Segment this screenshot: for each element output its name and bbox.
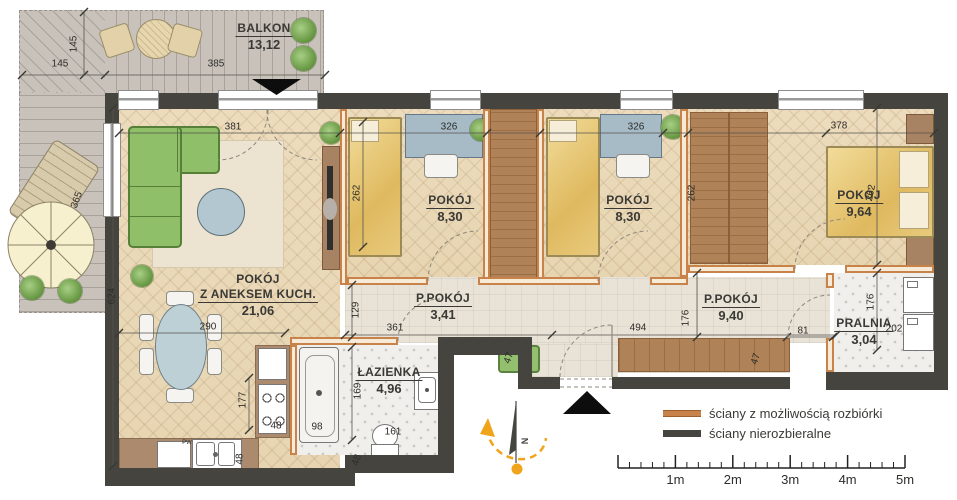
scale-label: 1m (666, 472, 684, 487)
wall-structural (518, 355, 532, 389)
umbrella-icon (4, 198, 98, 292)
sink-basin (218, 442, 235, 466)
sofa-cushion-line (130, 216, 180, 217)
floor-entry (532, 343, 618, 377)
legend-swatch-dark (663, 430, 701, 437)
scale-label: 2m (724, 472, 742, 487)
sofa-cushion-line (130, 186, 180, 187)
plant-icon (291, 46, 316, 71)
wall-demolishable (478, 277, 600, 285)
legend-item-demolishable: ściany z możliwością rozbiórki (663, 406, 882, 421)
legend-swatch-orange (663, 410, 701, 417)
wall-structural (612, 377, 790, 389)
wall-demolishable (680, 109, 688, 277)
plant-icon (58, 279, 82, 303)
scale-ruler (618, 455, 905, 468)
desk (600, 114, 662, 158)
tv-console-knob (323, 198, 337, 220)
window (620, 90, 673, 110)
wall-structural (438, 337, 532, 355)
wall-structural (438, 337, 454, 473)
sofa-cushion-line (177, 128, 178, 172)
wall-demolishable (688, 265, 795, 273)
wall-structural (826, 372, 942, 390)
bed-pillow (899, 151, 929, 188)
window (118, 90, 159, 110)
nightstand (906, 236, 934, 266)
dining-table (155, 304, 207, 390)
bathtub-drain (316, 390, 322, 396)
north-label: N (519, 438, 529, 445)
bed-pillow (899, 192, 929, 229)
legend-item-structural: ściany nierozbieralne (663, 426, 831, 441)
hall-wardrobe (618, 338, 790, 372)
corner-sofa (128, 126, 182, 248)
wall-demolishable (826, 273, 834, 288)
wall-demolishable (537, 109, 544, 285)
wall-demolishable (290, 345, 297, 455)
washing-machine-latch (907, 318, 918, 325)
faucet (213, 452, 218, 457)
plant-icon (131, 265, 153, 287)
dining-chair (166, 388, 194, 403)
wall-demolishable (845, 265, 934, 273)
desk-chair (616, 154, 650, 178)
balcony-door (218, 90, 318, 110)
kitchen-cabinet (258, 348, 287, 380)
dining-chair (207, 314, 222, 341)
plant-icon (320, 122, 342, 144)
wardrobe-divider (728, 112, 730, 264)
scale-label: 3m (781, 472, 799, 487)
window (778, 90, 864, 110)
wall-demolishable (483, 109, 490, 285)
wall-demolishable (347, 277, 428, 285)
wall-structural (532, 377, 560, 389)
legend-label: ściany z możliwością rozbiórki (709, 406, 882, 421)
wall-structural (105, 468, 355, 486)
plant-icon (20, 276, 44, 300)
bathtub-inner (305, 355, 335, 437)
wall-demolishable (650, 277, 688, 285)
bed-pillow (351, 120, 379, 142)
floor-plan: ściany z możliwością rozbiórki ściany ni… (0, 0, 957, 500)
wall-demolishable (290, 337, 398, 345)
wall-demolishable (340, 109, 347, 285)
dining-chair (139, 348, 154, 375)
bed-pillow (549, 120, 577, 142)
balcony-deck-corner (20, 11, 105, 92)
window (430, 90, 481, 110)
floor-hallway (345, 277, 830, 343)
scale-label: 5m (896, 472, 914, 487)
entrance-threshold (560, 377, 612, 389)
coffee-table (197, 188, 245, 236)
plant-icon (291, 18, 316, 43)
nightstand (906, 114, 934, 144)
wall-structural (934, 93, 948, 390)
desk-chair (424, 154, 458, 178)
dining-chair (207, 348, 222, 375)
entrance-arrow-icon (563, 391, 611, 414)
legend-label: ściany nierozbieralne (709, 426, 831, 441)
stove (258, 384, 287, 434)
dining-chair (139, 314, 154, 341)
terrace-window (103, 123, 121, 217)
wall-demolishable (826, 338, 834, 372)
washing-machine-latch (907, 281, 918, 288)
sink-drain (425, 388, 429, 392)
wardrobe (490, 109, 537, 285)
scale-label: 4m (839, 472, 857, 487)
dishwasher (157, 441, 191, 468)
north-arrow-icon (480, 401, 546, 475)
